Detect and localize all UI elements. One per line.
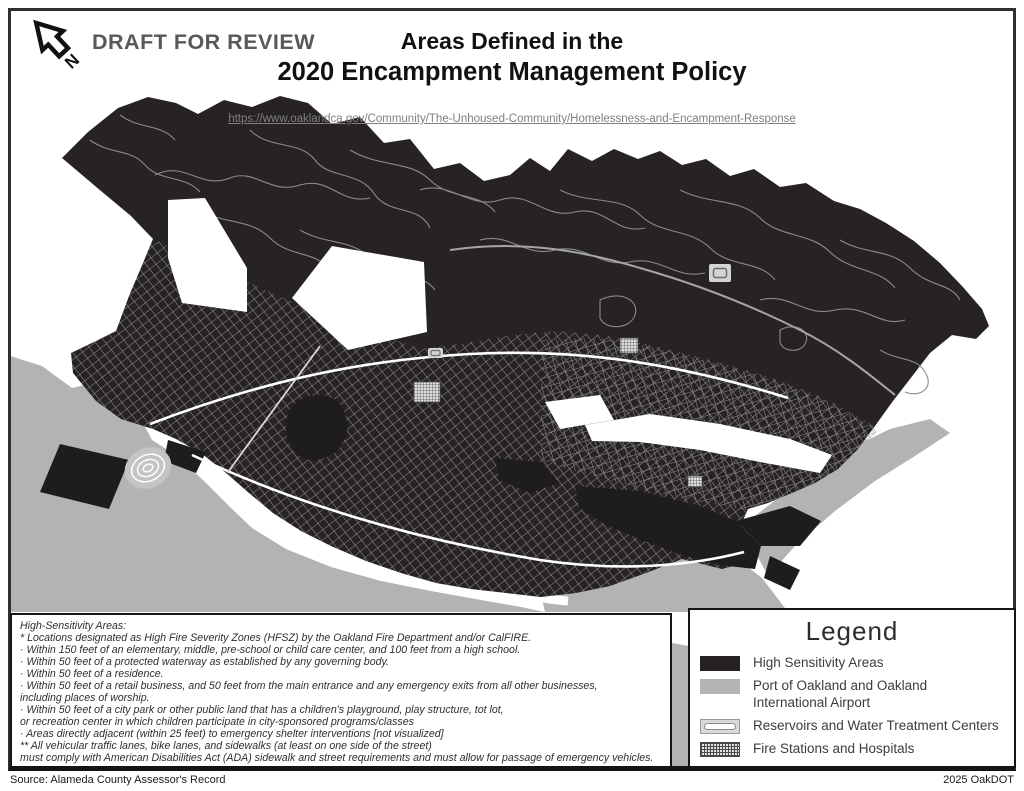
notes-line: · Within 50 feet of a residence. — [20, 668, 662, 680]
notes-line: or recreation center in which children p… — [20, 716, 662, 728]
legend-swatch-port — [700, 679, 740, 694]
notes-line: * Locations designated as High Fire Seve… — [20, 632, 662, 644]
page-title-line2: 2020 Encampment Management Policy — [0, 58, 1024, 87]
legend-box: Legend High Sensitivity Areas Port of Oa… — [688, 608, 1016, 768]
notes-line: · Areas directly adjacent (within 25 fee… — [20, 728, 662, 740]
legend-label: Fire Stations and Hospitals — [753, 741, 914, 758]
legend-label: Port of Oakland and Oakland Internationa… — [753, 678, 1004, 712]
legend-item-high-sensitivity: High Sensitivity Areas — [700, 655, 1004, 672]
notes-line: High-Sensitivity Areas: — [20, 620, 662, 632]
notes-line: must comply with American Disabilities A… — [20, 752, 662, 764]
notes-line: · Within 150 feet of an elementary, midd… — [20, 644, 662, 656]
legend-item-port: Port of Oakland and Oakland Internationa… — [700, 678, 1004, 712]
legend-swatch-fire-stations — [700, 742, 740, 757]
page-title-line1: Areas Defined in the — [0, 28, 1024, 55]
source-credit: Source: Alameda County Assessor's Record — [10, 774, 225, 786]
legend-swatch-reservoirs — [700, 719, 740, 734]
legend-item-fire-stations: Fire Stations and Hospitals — [700, 741, 1004, 758]
legend-label: High Sensitivity Areas — [753, 655, 884, 672]
legend-swatch-high-sensitivity — [700, 656, 740, 671]
notes-line: · Within 50 feet of a protected waterway… — [20, 656, 662, 668]
legend-title: Legend — [700, 616, 1004, 647]
notes-line: · Within 50 feet of a retail business, a… — [20, 680, 662, 692]
agency-credit: 2025 OakDOT — [943, 774, 1014, 786]
notes-line: · Within 50 feet of a city park or other… — [20, 704, 662, 716]
notes-line: ** All vehicular traffic lanes, bike lan… — [20, 740, 662, 752]
legend-item-reservoirs: Reservoirs and Water Treatment Centers — [700, 718, 1004, 735]
high-sensitivity-notes-box: High-Sensitivity Areas: * Locations desi… — [10, 613, 672, 768]
legend-label: Reservoirs and Water Treatment Centers — [753, 718, 999, 735]
title-block: Areas Defined in the 2020 Encampment Man… — [0, 28, 1024, 127]
policy-url-link[interactable]: https://www.oaklandca.gov/Community/The-… — [228, 113, 796, 125]
notes-line: including places of worship. — [20, 692, 662, 704]
